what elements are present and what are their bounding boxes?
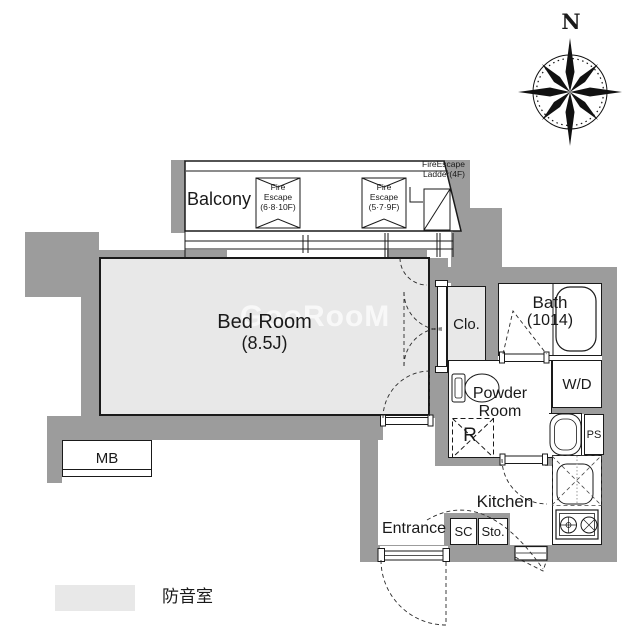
floorplan: W/D PS SC Sto. MB GooRooM [0, 0, 640, 640]
shoe-closet-box: SC [450, 518, 477, 545]
fire-escape-1-label: Fire Escape (6·8·10F) [255, 183, 301, 212]
wall [360, 440, 378, 562]
kitchen-label: Kitchen [458, 492, 552, 511]
refrigerator-label: R [452, 425, 488, 446]
bedroom-label: Bed Room (8.5J) [99, 311, 430, 354]
basin-nook [549, 413, 582, 458]
ladder-line2: Ladder(4F) [397, 170, 465, 180]
powder-line2: Room [450, 403, 550, 421]
wall [486, 283, 498, 360]
wall [448, 267, 617, 283]
wall [47, 416, 383, 440]
bath-name: Bath [498, 293, 602, 312]
bath-label: Bath (1014) [498, 293, 602, 330]
wall [171, 160, 185, 233]
storage-label: Sto. [481, 524, 504, 539]
wall [47, 426, 62, 483]
legend-swatch [55, 585, 135, 611]
pipe-space-label: PS [587, 429, 602, 441]
compass-n-label: N [559, 10, 583, 34]
fire-escape-1-line3: (6·8·10F) [255, 203, 301, 213]
meter-box: MB [62, 440, 152, 477]
washer-dryer-label: W/D [562, 376, 591, 393]
fire-escape-2-label: Fire Escape (5·7·9F) [361, 183, 407, 212]
entrance-label: Entrance [379, 520, 449, 538]
washer-dryer-box: W/D [552, 360, 602, 408]
shoe-closet-label: SC [454, 524, 472, 539]
wall [435, 458, 502, 466]
pipe-space-box: PS [584, 414, 604, 455]
wall [602, 267, 617, 562]
wall [81, 297, 99, 427]
wall [360, 545, 617, 562]
bedroom-name: Bed Room [99, 311, 430, 333]
powder-line1: Powder [450, 385, 550, 403]
powder-room-label: Powder Room [450, 385, 550, 421]
fire-escape-2-line3: (5·7·9F) [361, 203, 407, 213]
meter-box-label: MB [96, 450, 119, 467]
bath-size: (1014) [498, 312, 602, 330]
bedroom-doorway [381, 415, 434, 440]
storage-box: Sto. [478, 518, 508, 545]
compass-icon [518, 38, 622, 146]
wall [25, 232, 99, 297]
bedroom-size: (8.5J) [99, 333, 430, 353]
legend-label: 防音室 [162, 587, 272, 606]
closet-label: Clo. [447, 317, 486, 334]
kitchen-counter [552, 455, 602, 545]
fire-escape-ladder-label: FireEscape Ladder(4F) [397, 160, 465, 180]
fire-escape-ladder-icon [410, 187, 450, 230]
